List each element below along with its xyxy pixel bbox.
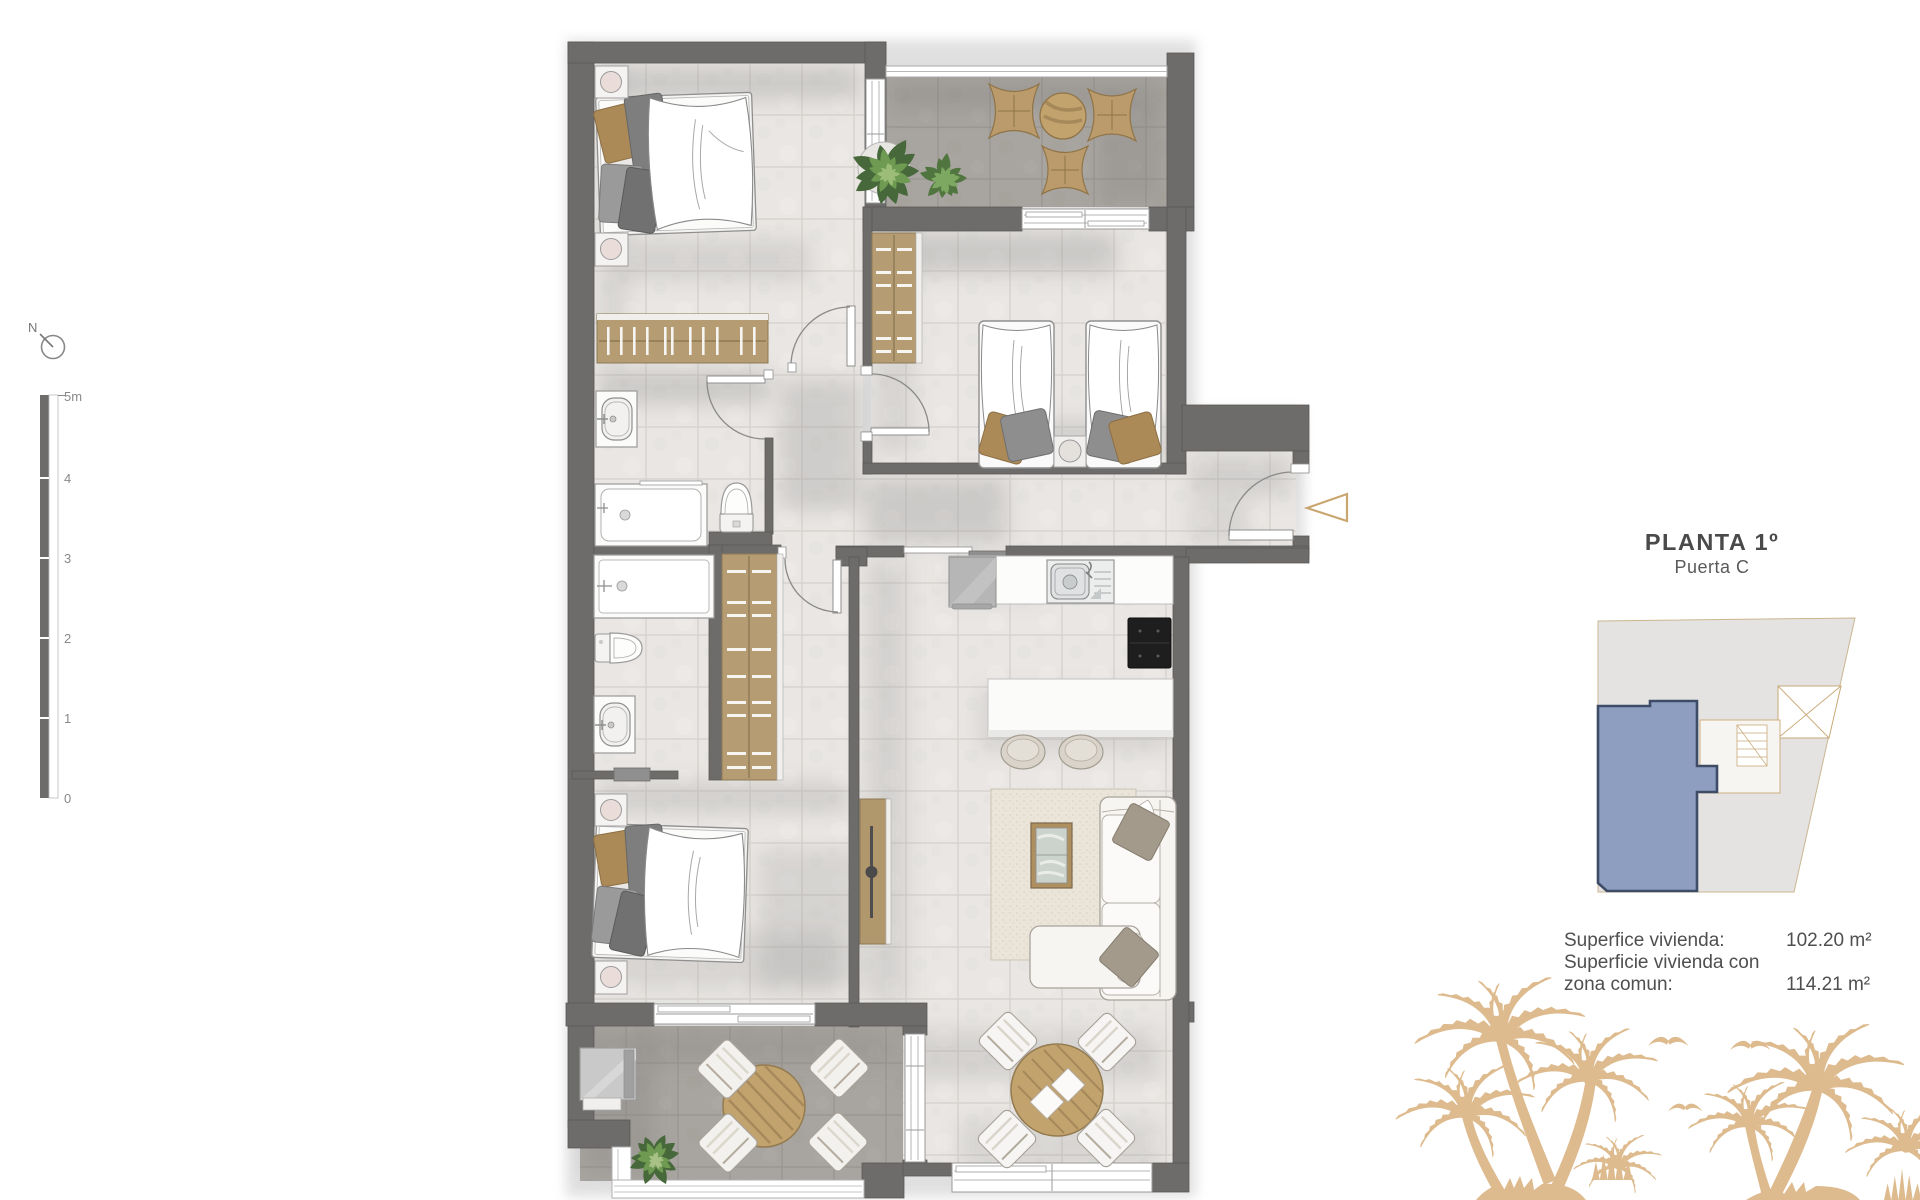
- svg-text:3: 3: [64, 551, 71, 566]
- svg-text:N: N: [28, 320, 37, 335]
- svg-text:114.21 m²: 114.21 m²: [1786, 974, 1870, 995]
- svg-text:5m: 5m: [64, 389, 82, 404]
- svg-text:Superfice vivienda:: Superfice vivienda:: [1564, 930, 1725, 951]
- svg-text:1: 1: [64, 711, 71, 726]
- svg-text:2: 2: [64, 631, 71, 646]
- svg-text:zona comun:: zona comun:: [1564, 974, 1673, 995]
- svg-text:0: 0: [64, 791, 71, 806]
- svg-text:102.20 m²: 102.20 m²: [1786, 930, 1872, 951]
- svg-text:Puerta C: Puerta C: [1674, 557, 1749, 577]
- svg-text:PLANTA 1º: PLANTA 1º: [1645, 529, 1779, 555]
- svg-text:4: 4: [64, 471, 71, 486]
- svg-text:Superficie vivienda con: Superficie vivienda con: [1564, 952, 1759, 973]
